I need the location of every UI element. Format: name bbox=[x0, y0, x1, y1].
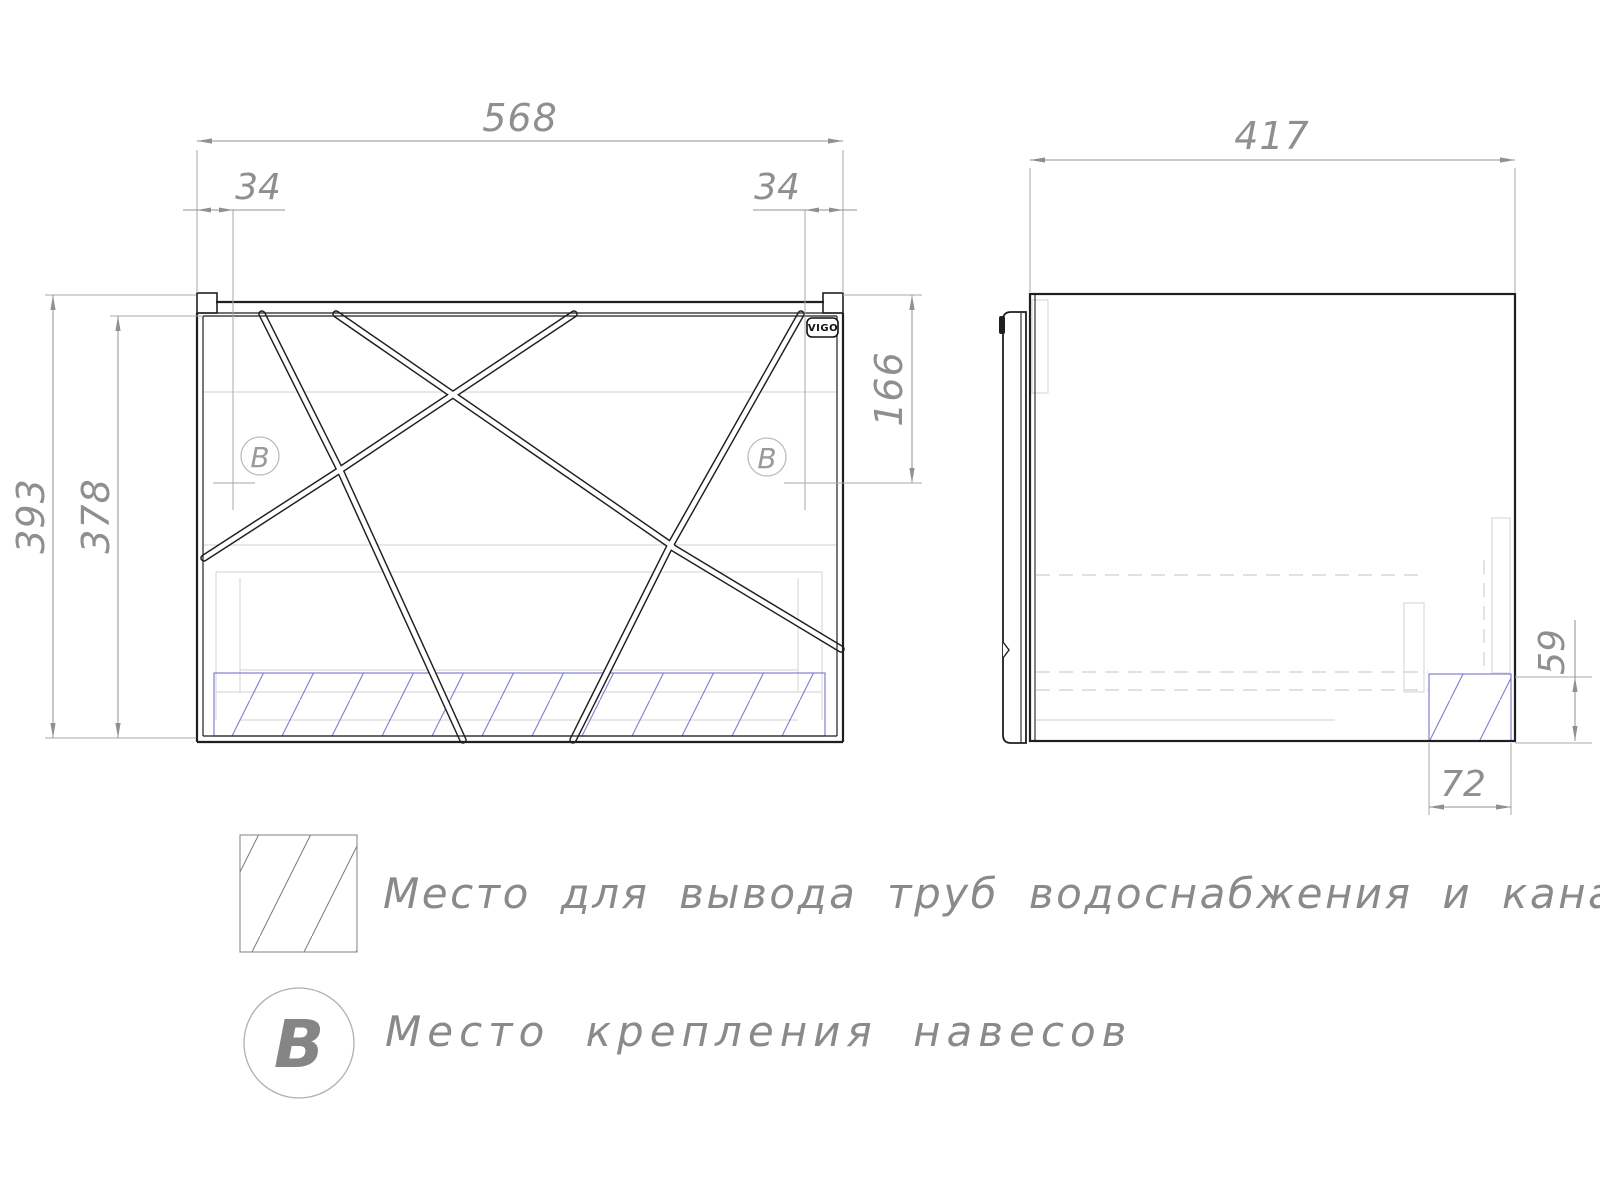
legend-mount-text: Место крепления навесов bbox=[385, 1007, 1132, 1056]
dim-side-depth: 417 bbox=[1234, 114, 1310, 158]
left-wall-tab bbox=[197, 293, 217, 313]
legend-mount-row: B Место крепления навесов bbox=[244, 988, 1132, 1098]
dim-front-width: 568 bbox=[482, 96, 558, 140]
dim-front-right-offset: 34 bbox=[754, 167, 800, 208]
side-internal-lines bbox=[1032, 300, 1510, 720]
cabinet-drawing-svg: VIGO B B bbox=[0, 0, 1600, 1200]
mount-label-left: B bbox=[250, 441, 269, 474]
dim-front-height: 393 bbox=[9, 478, 53, 554]
side-door bbox=[999, 312, 1026, 743]
drawing-page: VIGO B B bbox=[0, 0, 1600, 1200]
front-pipe-cutout-hatch bbox=[214, 673, 825, 736]
legend: Место для вывода труб водоснабжения и ка… bbox=[240, 835, 1600, 1098]
right-wall-tab bbox=[823, 293, 843, 313]
legend-pipes-row: Место для вывода труб водоснабжения и ка… bbox=[240, 835, 1600, 952]
legend-mount-symbol: B bbox=[274, 1006, 324, 1083]
door-top-profile bbox=[999, 316, 1005, 334]
dim-cutout-height: 59 bbox=[1532, 629, 1573, 675]
side-view bbox=[999, 294, 1515, 743]
brand-label: VIGO bbox=[808, 323, 838, 334]
dim-front-left-offset: 34 bbox=[235, 167, 281, 208]
dim-cutout-width: 72 bbox=[1440, 764, 1486, 805]
front-view: VIGO B B bbox=[197, 293, 843, 742]
legend-pipes-text: Место для вывода труб водоснабжения и ка… bbox=[383, 869, 1600, 918]
dim-front-mount-drop: 166 bbox=[867, 351, 911, 427]
brand-plate: VIGO bbox=[807, 318, 838, 337]
dim-front-inner-height: 378 bbox=[74, 478, 118, 554]
side-pipe-cutout-hatch bbox=[1429, 674, 1511, 741]
legend-hatch-swatch bbox=[240, 835, 357, 952]
mount-label-right: B bbox=[757, 442, 776, 475]
